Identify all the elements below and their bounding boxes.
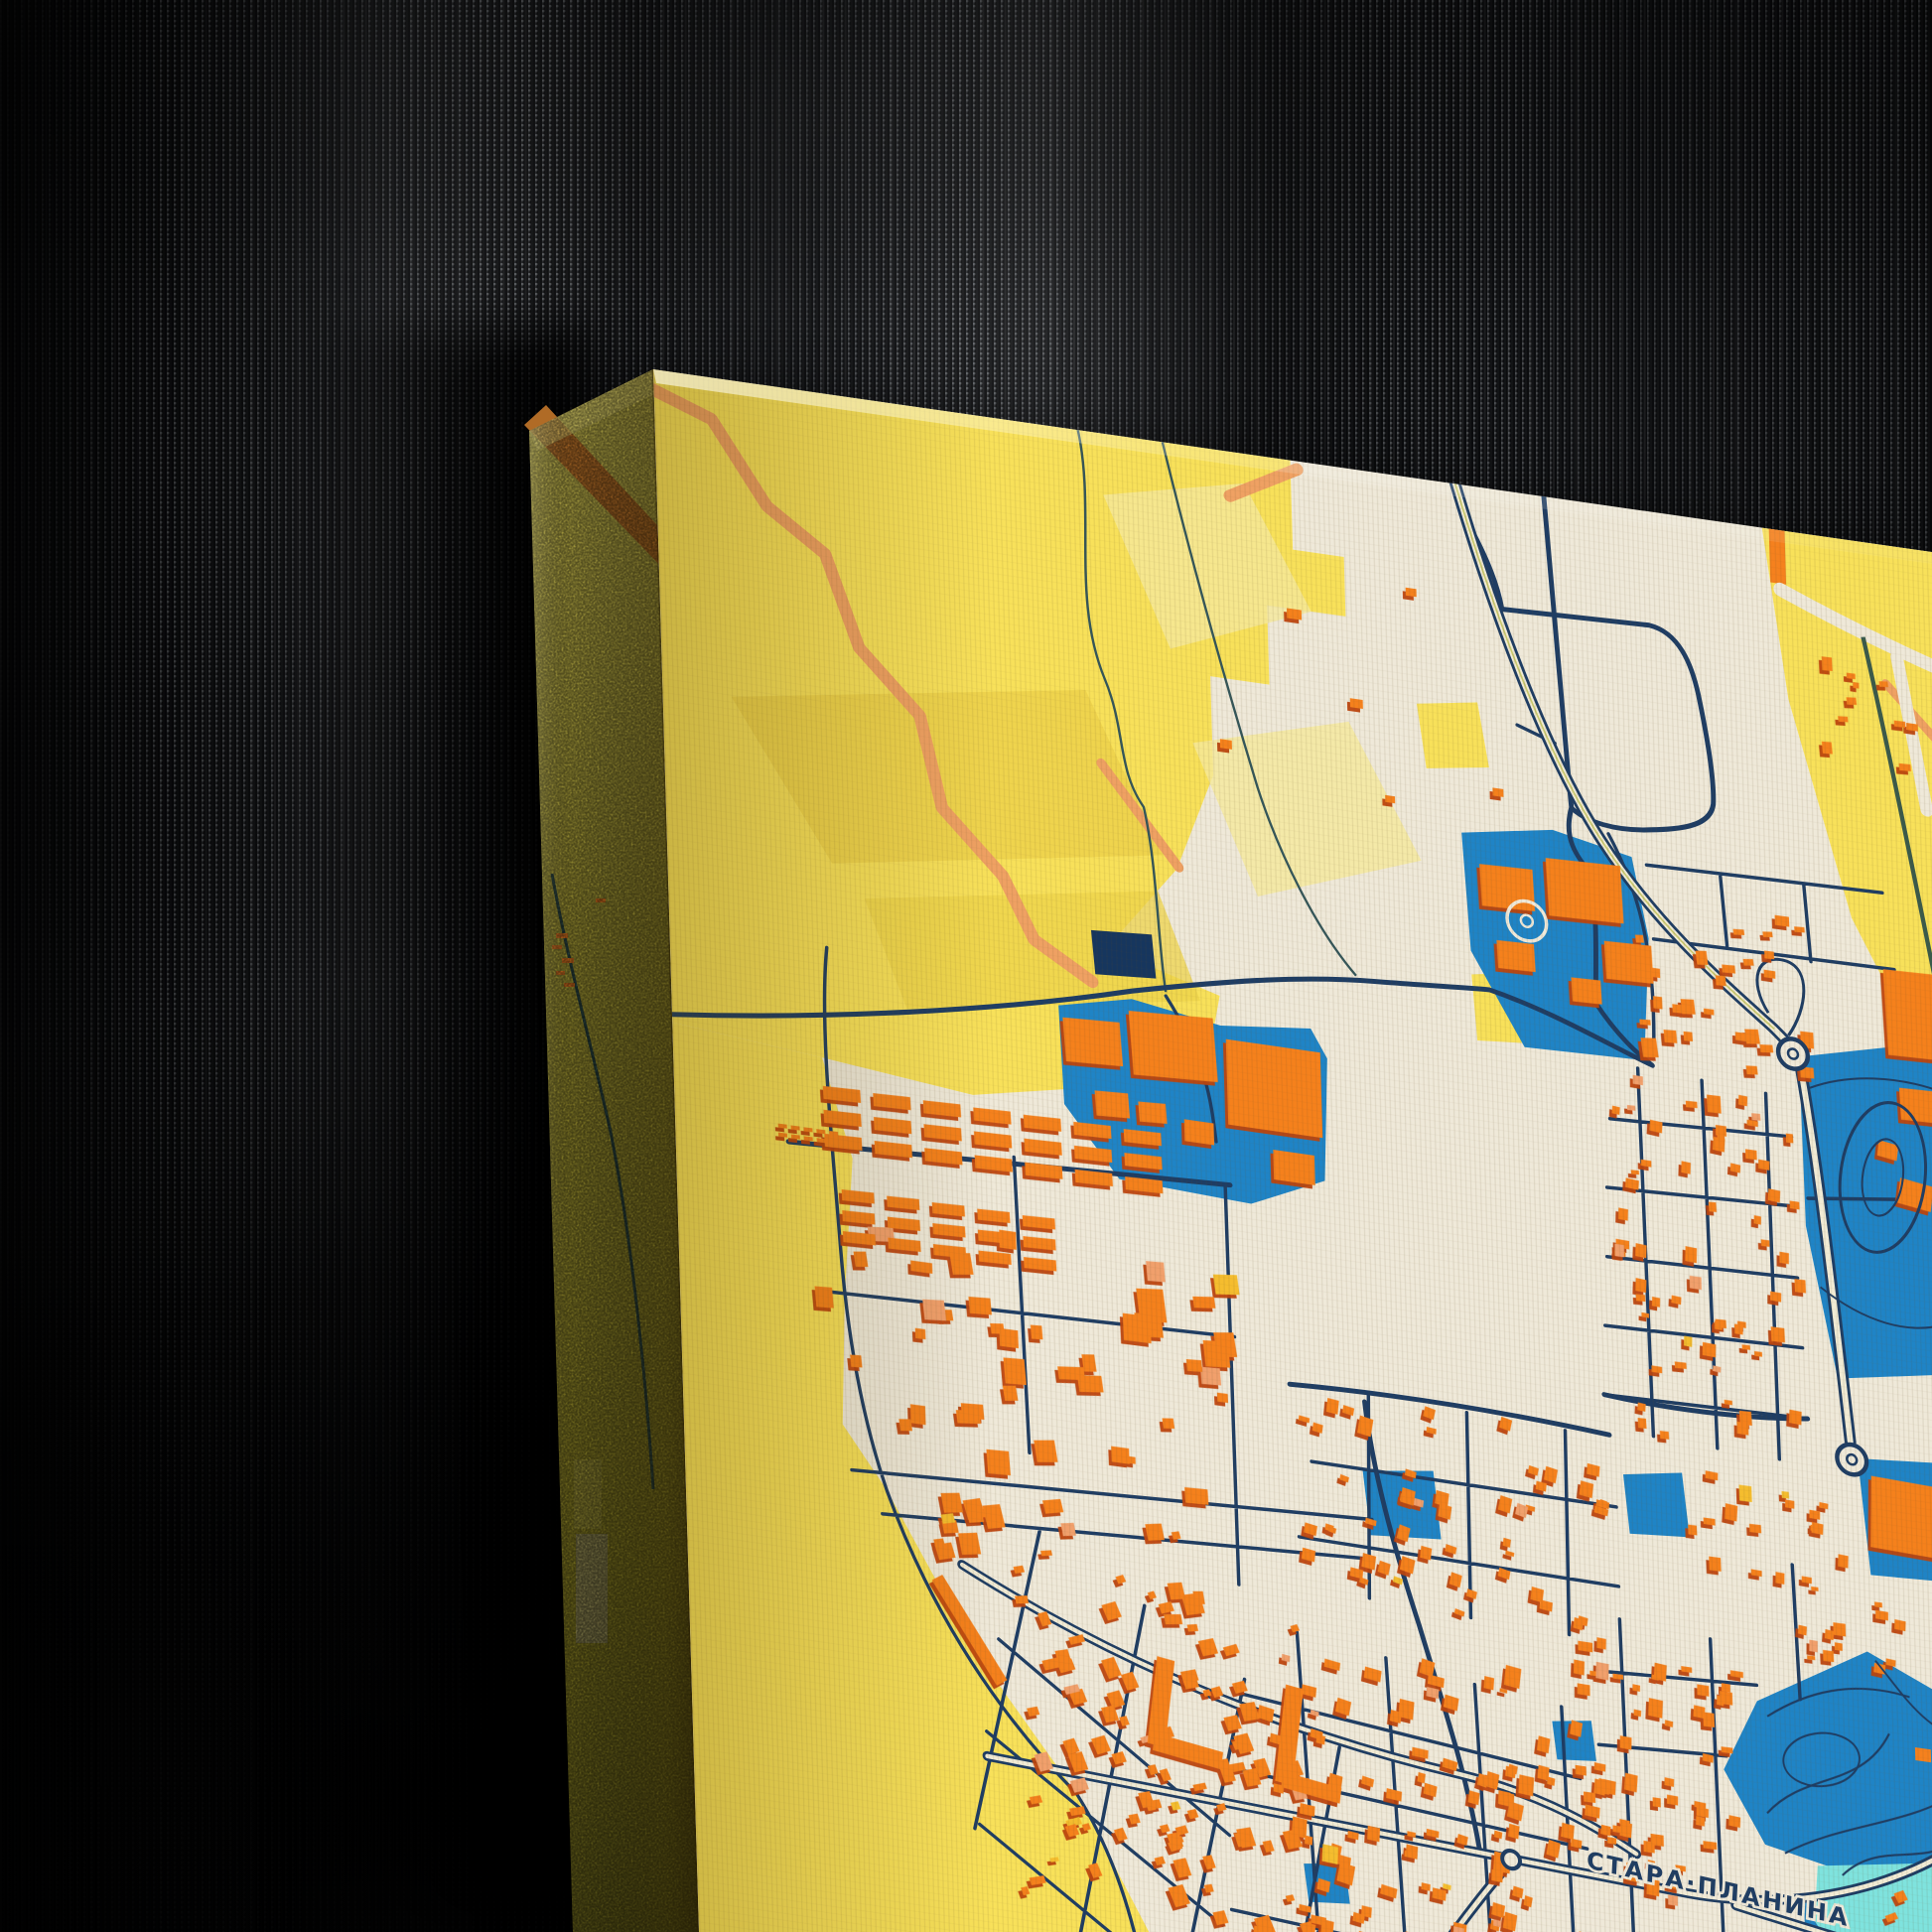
canvas-front-face: СТАРА·ПЛАНИНА bbox=[633, 346, 1932, 1932]
canvas-print: СТАРА·ПЛАНИНА bbox=[0, 0, 1932, 1932]
product-photo: СТАРА·ПЛАНИНА bbox=[0, 0, 1932, 1932]
front-fold-shading bbox=[645, 357, 1932, 1932]
